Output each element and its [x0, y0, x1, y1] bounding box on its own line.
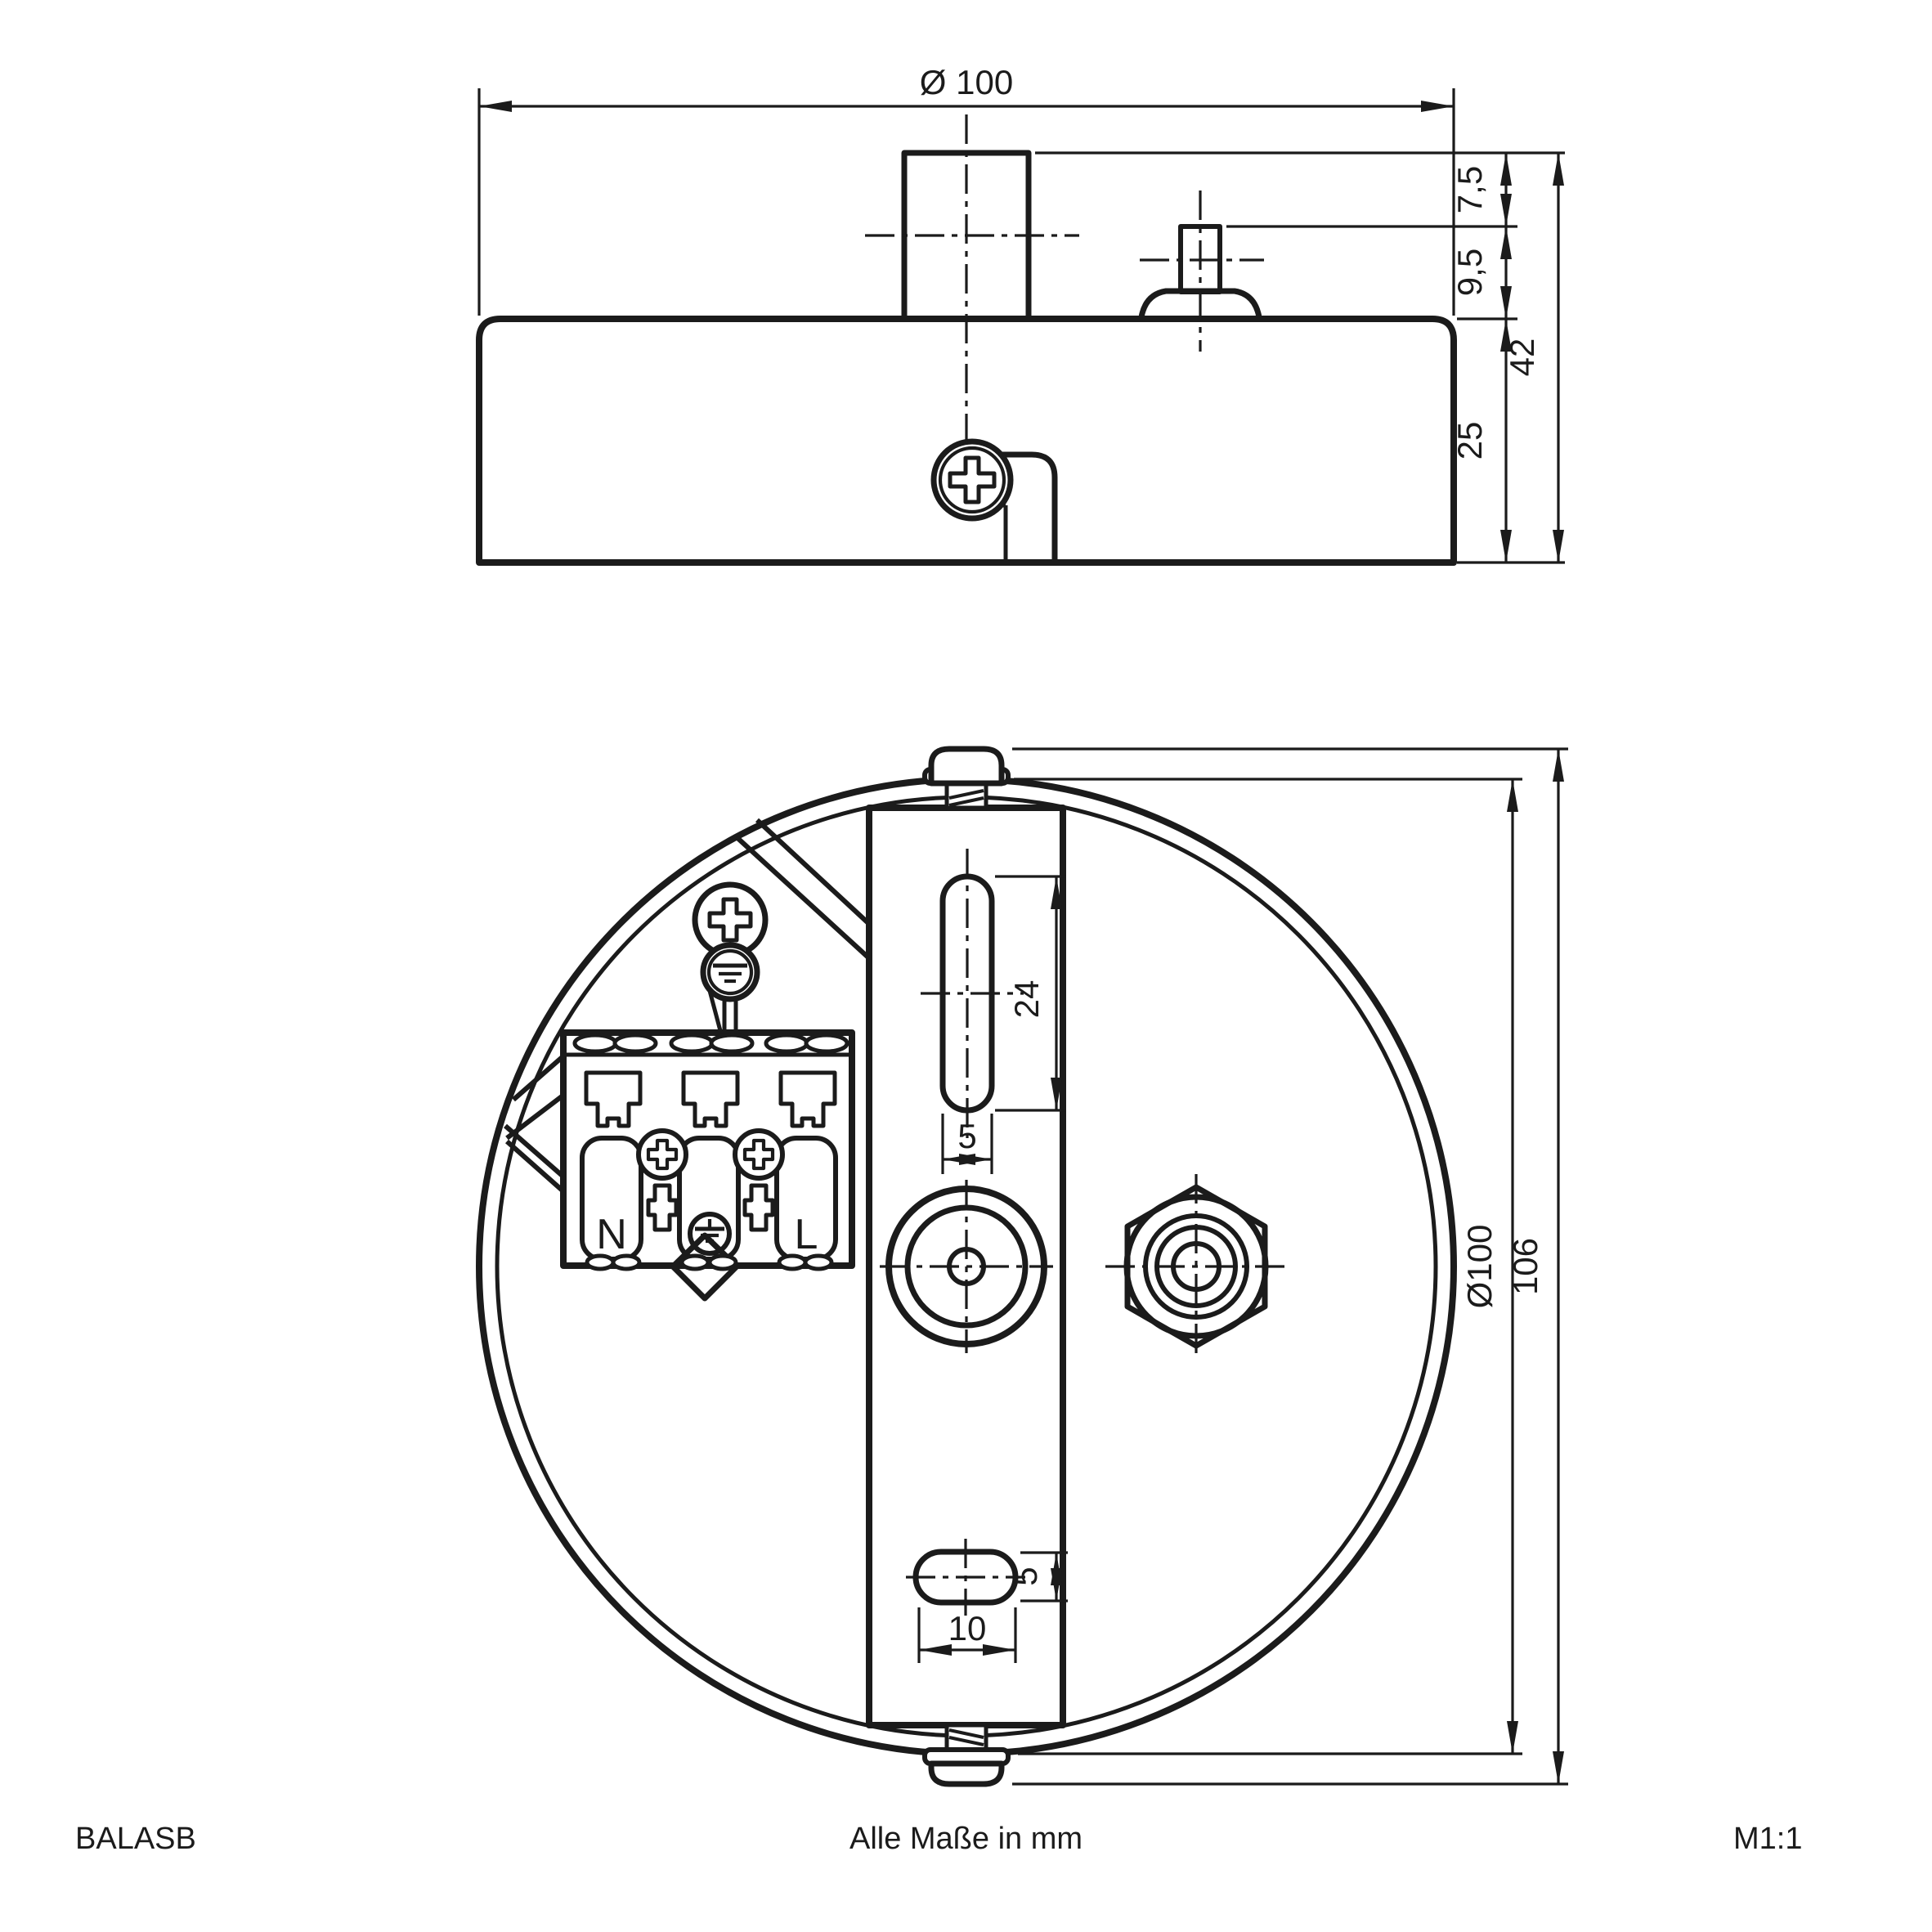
drawing-canvas: Ø 100 7,5 9,5 25 42 [0, 0, 1932, 1932]
clamp-cutouts [586, 1073, 835, 1126]
plan-view-drawing: N L 24 5 5 [479, 749, 1568, 1784]
terminal-label-n: N [596, 1211, 627, 1258]
dim-label-10: 10 [948, 1609, 987, 1647]
dim-label-106: 106 [1506, 1238, 1544, 1295]
dim-label-9-5: 9,5 [1450, 249, 1489, 296]
dim-label-d100: Ø100 [1460, 1225, 1499, 1309]
units-note: Alle Maße in mm [0, 1822, 1932, 1857]
dim-label-24: 24 [1007, 980, 1046, 1019]
side-centerlines [865, 114, 1264, 446]
terminal-screw-icon [735, 1131, 782, 1178]
dim-label-5b: 5 [1006, 1567, 1044, 1585]
dim-heights: 7,5 9,5 25 42 [1035, 153, 1565, 563]
drawing-scale: M1:1 [1733, 1822, 1802, 1857]
terminal-block: N L [563, 1033, 852, 1298]
terminal-label-l: L [795, 1211, 818, 1258]
dim-label-7-5: 7,5 [1450, 166, 1489, 213]
gland-nut [1105, 1174, 1287, 1359]
top-bolt-head [931, 749, 1002, 783]
dim-label-25: 25 [1450, 422, 1489, 460]
screw-icon [934, 442, 1011, 518]
terminal-screw-icon [639, 1131, 686, 1178]
dim-label-42: 42 [1503, 338, 1541, 377]
technical-drawing-page: Ø 100 7,5 9,5 25 42 [0, 0, 1932, 1932]
earth-screw-assembly [695, 885, 765, 1053]
product-code: BALASB [75, 1822, 196, 1857]
side-view-drawing: Ø 100 7,5 9,5 25 42 [479, 63, 1565, 563]
dim-label-5: 5 [957, 1117, 976, 1155]
dim-label-diameter: Ø 100 [920, 63, 1013, 101]
bottom-bolt-head [931, 1764, 1002, 1784]
